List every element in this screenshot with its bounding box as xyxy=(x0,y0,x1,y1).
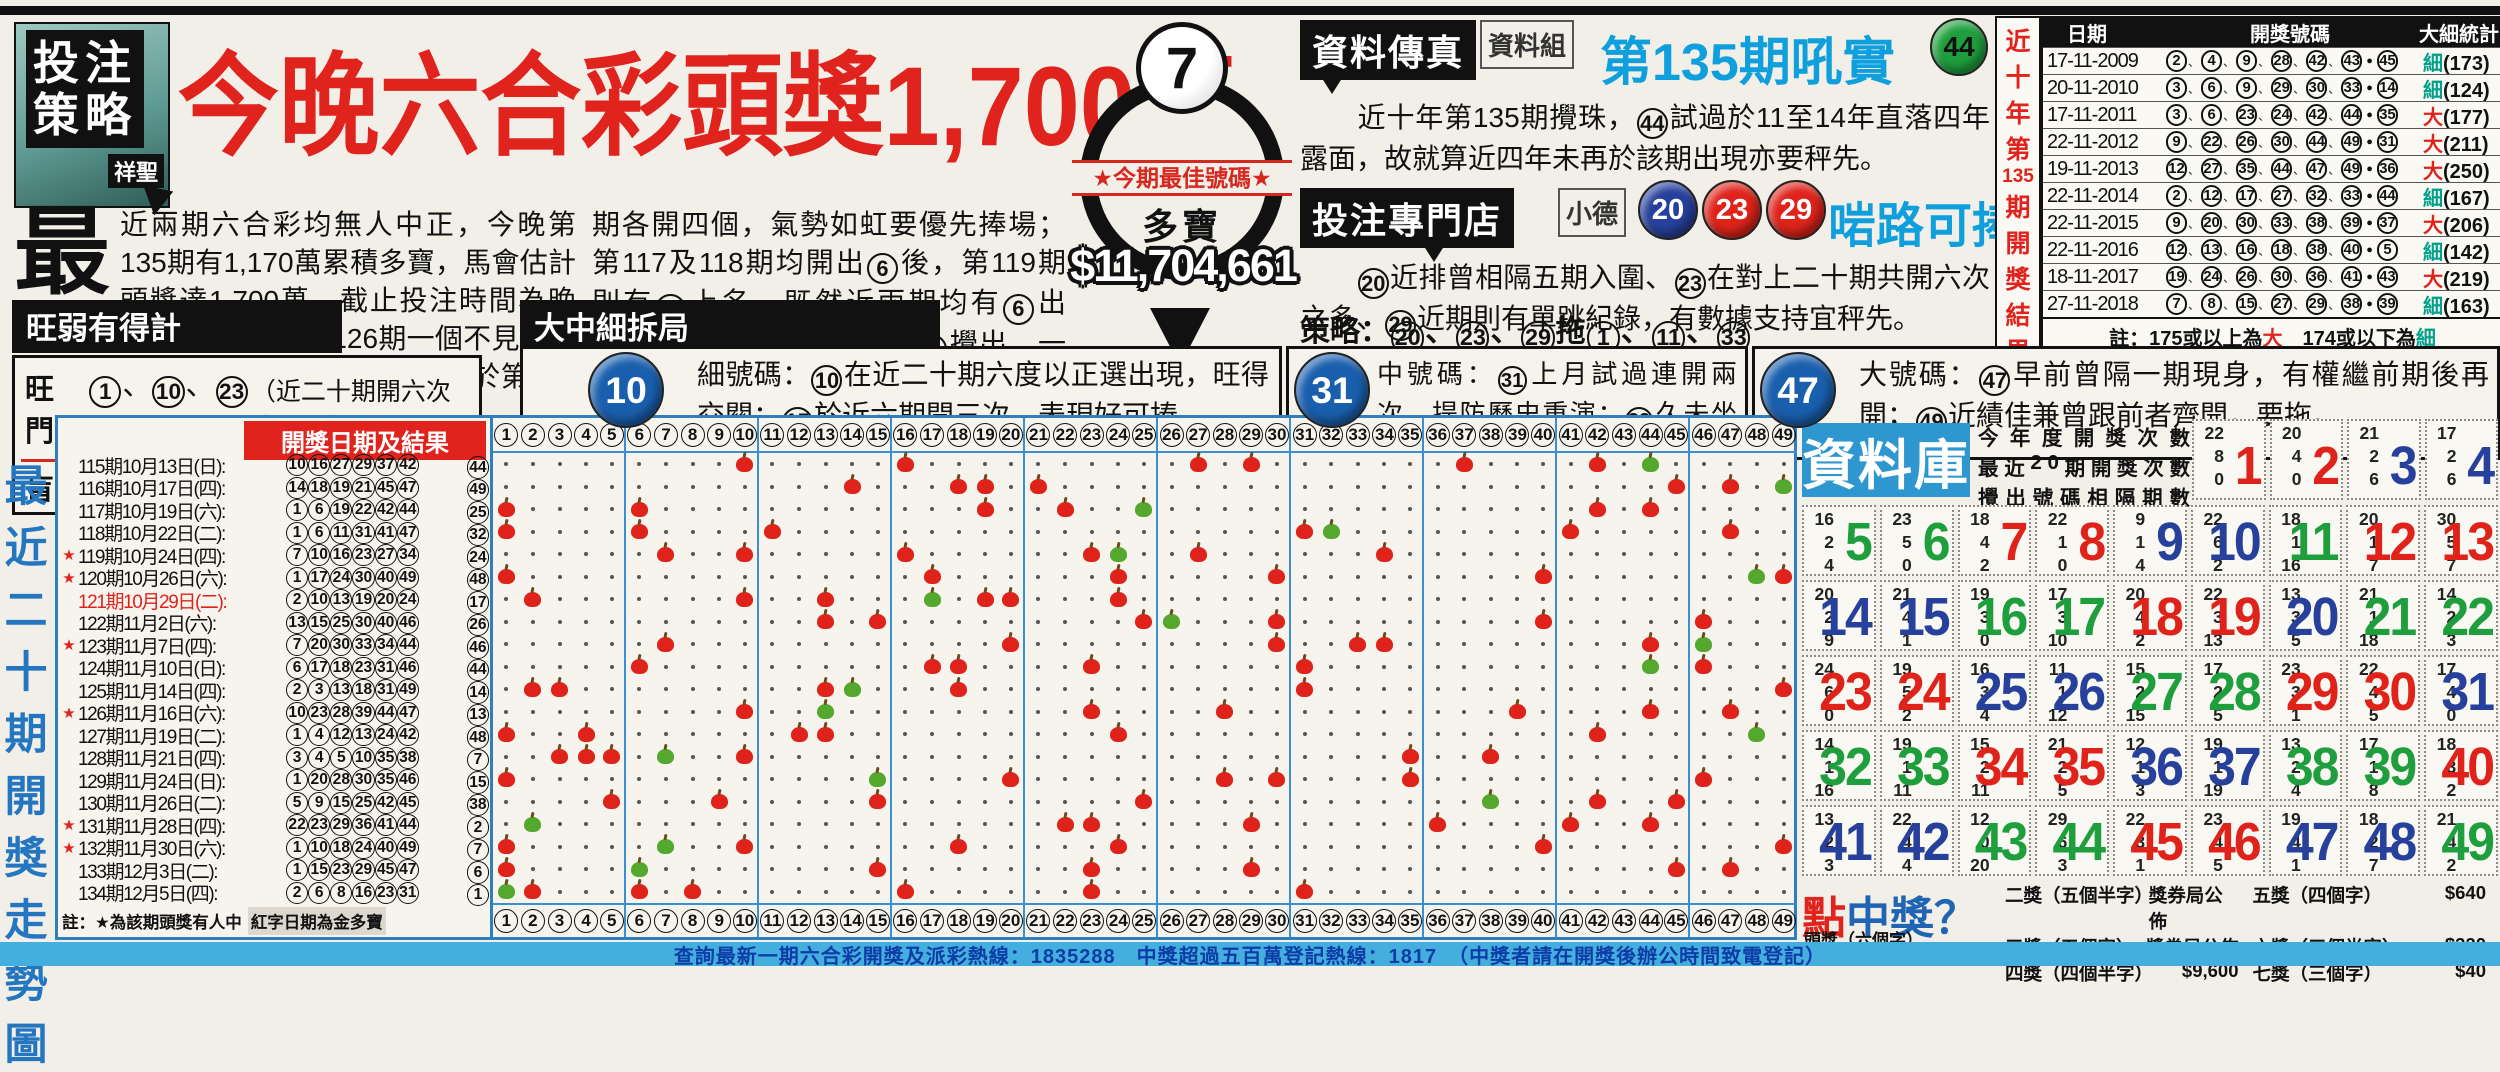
circled-number: 18 xyxy=(352,679,374,701)
dot xyxy=(743,575,747,579)
red-apple-icon xyxy=(498,502,515,517)
red-apple-icon xyxy=(817,727,834,742)
dot xyxy=(1009,485,1013,489)
dot xyxy=(1782,620,1786,624)
circled-number: 1 xyxy=(89,376,121,408)
dot xyxy=(1489,687,1493,691)
number-ball-20: 20 xyxy=(1638,180,1698,240)
grid-header-number: 10 xyxy=(732,418,759,451)
dot xyxy=(983,732,987,736)
circled-number: 9 xyxy=(2166,212,2187,233)
database-cell-1: 22801 xyxy=(2192,419,2266,500)
dot xyxy=(850,552,854,556)
green-apple-icon xyxy=(1748,569,1765,584)
dot xyxy=(1569,642,1573,646)
red-apple-icon xyxy=(498,524,515,539)
circled-number: 10 xyxy=(286,454,308,476)
fax-body: 近十年第135期攪珠，44試過於11至14年直落四年露面，故就算近四年未再於該期… xyxy=(1300,98,1990,178)
green-apple-icon xyxy=(844,682,861,697)
grid-row xyxy=(493,476,1797,499)
circled-number: 45 xyxy=(2377,50,2398,71)
circled-number: 23 xyxy=(352,544,374,566)
red-apple-icon xyxy=(1243,457,1260,472)
circled-number: 49 xyxy=(2341,131,2362,152)
dot xyxy=(797,845,801,849)
dot xyxy=(1674,552,1678,556)
dot xyxy=(1569,552,1573,556)
green-apple-icon xyxy=(1110,547,1127,562)
circled-number: 30 xyxy=(352,769,374,791)
grid-header-number: 11 xyxy=(759,904,786,937)
circled-number: 19 xyxy=(2166,266,2187,287)
dot xyxy=(770,710,774,714)
dot xyxy=(1063,845,1067,849)
dot xyxy=(1436,507,1440,511)
grid-header-number: 17 xyxy=(919,904,946,937)
circled-number: 42 xyxy=(2306,50,2327,71)
dot xyxy=(1649,732,1653,736)
circled-number: 44 xyxy=(375,702,397,724)
dot xyxy=(1728,642,1732,646)
red-apple-icon xyxy=(1243,817,1260,832)
circled-number: 6 xyxy=(867,253,898,284)
dot xyxy=(1116,462,1120,466)
dot xyxy=(797,822,801,826)
circled-number: 21 xyxy=(352,477,374,499)
red-apple-icon xyxy=(657,547,674,562)
dot xyxy=(1649,530,1653,534)
dot xyxy=(1142,597,1146,601)
dot xyxy=(983,777,987,781)
circled-number: 41 xyxy=(375,814,397,836)
dot xyxy=(1782,530,1786,534)
circled-number: 28 xyxy=(2271,50,2292,71)
dot xyxy=(717,822,721,826)
dot xyxy=(1196,822,1200,826)
dot xyxy=(610,732,614,736)
dot xyxy=(1755,642,1759,646)
dot xyxy=(1569,777,1573,781)
dot xyxy=(1275,485,1279,489)
circled-number: 1 xyxy=(286,724,308,746)
dot xyxy=(1063,597,1067,601)
dot xyxy=(1622,755,1626,759)
red-apple-icon xyxy=(578,749,595,764)
dot xyxy=(1702,530,1706,534)
dot xyxy=(743,530,747,534)
dot xyxy=(1489,575,1493,579)
grid-row xyxy=(493,566,1797,589)
circled-number: 29 xyxy=(2271,77,2292,98)
circled-number: 39 xyxy=(2341,212,2362,233)
dot xyxy=(1329,710,1333,714)
green-apple-icon xyxy=(1642,659,1659,674)
dot xyxy=(1702,755,1706,759)
dot xyxy=(1036,575,1040,579)
dot xyxy=(1303,755,1307,759)
red-apple-icon xyxy=(950,479,967,494)
circled-number: 7 xyxy=(2166,293,2187,314)
dot xyxy=(1090,732,1094,736)
dot xyxy=(1036,890,1040,894)
circled-number: 23 xyxy=(375,882,397,904)
dot xyxy=(1436,687,1440,691)
circled-number: 19 xyxy=(352,589,374,611)
trend-title-char: 走 xyxy=(5,886,48,948)
green-apple-icon xyxy=(1642,457,1659,472)
circled-number: 35 xyxy=(2377,104,2398,125)
circled-number: 6 xyxy=(286,657,308,679)
dot xyxy=(1170,845,1174,849)
dot xyxy=(1674,845,1678,849)
red-apple-icon xyxy=(1296,524,1313,539)
dot xyxy=(717,642,721,646)
red-apple-icon xyxy=(524,682,541,697)
dot xyxy=(1674,507,1678,511)
dot xyxy=(770,507,774,511)
dot xyxy=(1728,507,1732,511)
red-apple-icon xyxy=(736,749,753,764)
dot xyxy=(1649,867,1653,871)
size-ball-47: 47 xyxy=(1760,352,1836,428)
grid-header-number: 21 xyxy=(1025,418,1052,451)
ten-year-header-row: 日期 開獎號碼 大細統計 xyxy=(2043,18,2500,47)
dot xyxy=(531,530,535,534)
dot xyxy=(1329,890,1333,894)
dot xyxy=(1622,665,1626,669)
dot xyxy=(1063,732,1067,736)
circled-number: 31 xyxy=(397,882,419,904)
dot xyxy=(957,777,961,781)
dot xyxy=(1223,642,1227,646)
dot xyxy=(1036,867,1040,871)
dot xyxy=(983,687,987,691)
dot xyxy=(983,755,987,759)
dot xyxy=(876,710,880,714)
dot xyxy=(850,822,854,826)
circled-number: 44 xyxy=(2271,158,2292,179)
grid-header-number: 46 xyxy=(1690,418,1717,451)
dot xyxy=(1275,687,1279,691)
circled-number: 30 xyxy=(330,634,352,656)
circled-number: 31 xyxy=(375,679,397,701)
database-cell-33: 1911133 xyxy=(1880,730,1954,801)
dot xyxy=(1329,665,1333,669)
database-cell-36: 121336 xyxy=(2113,730,2187,801)
dot xyxy=(1249,530,1253,534)
dot xyxy=(1382,710,1386,714)
circled-number: 47 xyxy=(397,522,419,544)
dot xyxy=(1541,822,1545,826)
circled-number: 1 xyxy=(286,567,308,589)
grid-header-number: 30 xyxy=(1265,418,1292,451)
circled-number: 47 xyxy=(397,702,419,724)
dot xyxy=(1462,530,1466,534)
ten-year-row: 22-11-20159、20、30、33、38、39●37大(206) xyxy=(2043,209,2500,236)
dot xyxy=(824,642,828,646)
dot xyxy=(1595,867,1599,871)
dot xyxy=(850,890,854,894)
dot xyxy=(584,710,588,714)
dot xyxy=(1196,665,1200,669)
dot xyxy=(664,687,668,691)
dot xyxy=(1702,890,1706,894)
dot xyxy=(1462,552,1466,556)
circled-number: 38 xyxy=(2306,212,2327,233)
dot xyxy=(1782,710,1786,714)
dot xyxy=(930,867,934,871)
dot xyxy=(1408,530,1412,534)
circled-number: 3 xyxy=(2166,77,2187,98)
dot xyxy=(1541,800,1545,804)
dot xyxy=(1090,800,1094,804)
trend-note-a: 註：★為該期頭獎有人中 xyxy=(62,909,242,933)
dot xyxy=(930,777,934,781)
dot xyxy=(770,777,774,781)
dot xyxy=(1436,867,1440,871)
dot xyxy=(957,890,961,894)
dot xyxy=(1090,845,1094,849)
dot xyxy=(1622,845,1626,849)
dot xyxy=(1702,687,1706,691)
dot xyxy=(1436,665,1440,669)
dot xyxy=(637,710,641,714)
dot xyxy=(1249,507,1253,511)
circled-number: 36 xyxy=(2377,158,2398,179)
dot xyxy=(743,485,747,489)
red-apple-icon xyxy=(1695,659,1712,674)
dot xyxy=(691,867,695,871)
dot xyxy=(691,665,695,669)
dot xyxy=(1595,777,1599,781)
dot xyxy=(1303,552,1307,556)
red-apple-icon xyxy=(897,547,914,562)
dot xyxy=(717,485,721,489)
dot xyxy=(1755,755,1759,759)
dot xyxy=(1275,530,1279,534)
grid-header-number: 24 xyxy=(1105,904,1132,937)
dot xyxy=(770,822,774,826)
dot xyxy=(1356,665,1360,669)
dot xyxy=(558,530,562,534)
dot xyxy=(664,507,668,511)
red-apple-icon xyxy=(791,727,808,742)
dot xyxy=(1036,777,1040,781)
green-apple-icon xyxy=(657,749,674,764)
dot xyxy=(1515,845,1519,849)
circled-number: 15 xyxy=(330,792,352,814)
dot xyxy=(691,462,695,466)
dot xyxy=(1674,822,1678,826)
dot xyxy=(770,575,774,579)
dot xyxy=(1622,800,1626,804)
dot xyxy=(1142,867,1146,871)
red-apple-icon xyxy=(1642,502,1659,517)
dot xyxy=(1462,620,1466,624)
dot xyxy=(1674,665,1678,669)
green-apple-icon xyxy=(1482,794,1499,809)
circled-number: 1 xyxy=(286,769,308,791)
dot xyxy=(1782,665,1786,669)
dot xyxy=(558,642,562,646)
dot xyxy=(1196,732,1200,736)
red-apple-icon xyxy=(1110,569,1127,584)
dot xyxy=(1249,710,1253,714)
dot xyxy=(1728,552,1732,556)
number-ball-47: 47 xyxy=(1760,352,1836,428)
dot xyxy=(1275,732,1279,736)
database-cell-35: 212535 xyxy=(2035,730,2109,801)
dot xyxy=(903,732,907,736)
dot xyxy=(1036,642,1040,646)
dot xyxy=(1249,890,1253,894)
draw-row: ★132期11月30日(六):110182440497 xyxy=(60,837,491,860)
database-cell-42: 224442 xyxy=(1880,805,1954,876)
circled-number: 29 xyxy=(2306,293,2327,314)
grid-header-number: 49 xyxy=(1770,904,1797,937)
circled-number: 1 xyxy=(286,837,308,859)
dot xyxy=(1674,687,1678,691)
dot xyxy=(637,845,641,849)
dot xyxy=(1515,597,1519,601)
dot xyxy=(903,845,907,849)
dot xyxy=(1408,890,1412,894)
dot xyxy=(637,642,641,646)
database-cell-29: 233129 xyxy=(2269,655,2343,726)
dot xyxy=(1329,732,1333,736)
circled-number: 17 xyxy=(2236,185,2257,206)
draw-row: 133期12月3日(二):115232945476 xyxy=(60,859,491,882)
circled-number: 30 xyxy=(2306,77,2327,98)
dot xyxy=(1249,755,1253,759)
dot xyxy=(957,507,961,511)
dot xyxy=(850,777,854,781)
red-apple-icon xyxy=(869,862,886,877)
dot xyxy=(1275,867,1279,871)
circled-number: 20 xyxy=(375,589,397,611)
circled-number: 27 xyxy=(2271,293,2292,314)
dot xyxy=(610,575,614,579)
dot xyxy=(1595,822,1599,826)
dot xyxy=(1249,665,1253,669)
circled-number: 28 xyxy=(330,769,352,791)
trend-side-title: 最近二十期開獎走勢圖 xyxy=(0,452,52,940)
dot xyxy=(1436,530,1440,534)
dot xyxy=(1436,552,1440,556)
dot xyxy=(770,755,774,759)
dot xyxy=(1489,777,1493,781)
red-apple-icon xyxy=(1002,637,1019,652)
circled-number: 12 xyxy=(2201,185,2222,206)
dot xyxy=(1356,485,1360,489)
grid-header-number: 23 xyxy=(1078,904,1105,937)
red-apple-icon xyxy=(1722,479,1739,494)
grid-header-number: 46 xyxy=(1690,904,1717,937)
dot xyxy=(1009,755,1013,759)
side-title-char: 開 xyxy=(2005,224,2030,260)
circled-number: 1 xyxy=(286,499,308,521)
grid-header-number: 6 xyxy=(626,904,653,937)
dot xyxy=(797,485,801,489)
dot xyxy=(1249,732,1253,736)
dot xyxy=(957,597,961,601)
database-cell-49: 214249 xyxy=(2424,805,2498,876)
badge-banner: ★今期最佳號碼★ xyxy=(1072,160,1292,196)
dot xyxy=(584,552,588,556)
ten-year-row: 22-11-201612、13、16、18、38、40●5細(142) xyxy=(2043,236,2500,263)
circled-number: 42 xyxy=(397,454,419,476)
side-title-char: 年 xyxy=(2005,94,2030,130)
circled-number: 45 xyxy=(397,792,419,814)
circled-number: 36 xyxy=(2306,266,2327,287)
dot xyxy=(1249,777,1253,781)
dot xyxy=(770,642,774,646)
logo-title: 投注 策略 xyxy=(26,30,144,148)
dot xyxy=(850,732,854,736)
database-row: 1624523506184272210891492262101811611201… xyxy=(1800,503,2500,578)
dot xyxy=(1649,575,1653,579)
grid-row xyxy=(493,543,1797,566)
dot xyxy=(504,665,508,669)
circled-number: 34 xyxy=(397,544,419,566)
dot xyxy=(1595,642,1599,646)
red-apple-icon xyxy=(1456,457,1473,472)
dot xyxy=(743,620,747,624)
circled-number: 26 xyxy=(2236,266,2257,287)
dot xyxy=(1063,710,1067,714)
dot xyxy=(1755,890,1759,894)
prize-section: 點中獎？ 頭獎（六個字） 二獎（五個半字）獎券局公佈五獎（四個字）$640三獎（… xyxy=(1800,882,2500,940)
red-apple-icon xyxy=(1243,862,1260,877)
dot xyxy=(1223,687,1227,691)
circled-number: 10 xyxy=(152,376,184,408)
database-cell-26: 1111226 xyxy=(2035,655,2109,726)
grid-header-number: 21 xyxy=(1025,904,1052,937)
fax-section: 資料傳真資料組 第135期吼實 44 近十年第135期攪珠，44試過於11至14… xyxy=(1300,20,1990,295)
dot xyxy=(1170,777,1174,781)
circled-number: 4 xyxy=(308,747,330,769)
dot xyxy=(770,890,774,894)
dot xyxy=(1303,575,1307,579)
database-row: 1411632191113315211342125351213361911937… xyxy=(1800,728,2500,803)
side-title-char: 第 xyxy=(2005,130,2030,166)
dot xyxy=(930,462,934,466)
dot xyxy=(1063,800,1067,804)
dot xyxy=(664,867,668,871)
dot xyxy=(1728,620,1732,624)
dot xyxy=(876,462,880,466)
dot xyxy=(1329,485,1333,489)
ten-year-row: 22-11-20129、22、26、30、44、49●31大(211) xyxy=(2043,128,2500,155)
dot xyxy=(1356,597,1360,601)
dot xyxy=(824,462,828,466)
dot xyxy=(1116,687,1120,691)
circled-number: 46 xyxy=(397,769,419,791)
red-apple-icon xyxy=(1695,614,1712,629)
red-apple-icon xyxy=(1083,817,1100,832)
dot xyxy=(1142,710,1146,714)
dot xyxy=(876,732,880,736)
dot xyxy=(1196,575,1200,579)
circled-number: 6 xyxy=(2201,104,2222,125)
draw-row: ★126期11月16日(六):10232839444713 xyxy=(60,702,491,725)
grid-header-number: 3 xyxy=(546,904,573,937)
grid-header-number: 26 xyxy=(1158,418,1185,451)
red-apple-icon xyxy=(1668,479,1685,494)
dot xyxy=(1515,822,1519,826)
red-apple-icon xyxy=(1482,749,1499,764)
dot xyxy=(610,822,614,826)
